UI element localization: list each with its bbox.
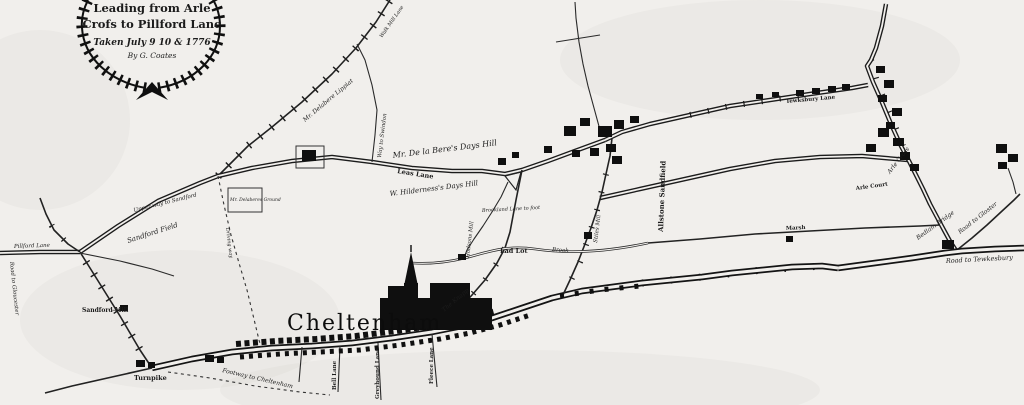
river-chelt — [412, 243, 648, 263]
label-brook: Brook — [551, 247, 570, 254]
label-hilderness-days-hill: W. Hilderness's Days Hill — [389, 179, 478, 198]
label-brookland-lane: Brookland Lane to foot — [481, 205, 541, 214]
building — [302, 150, 316, 161]
label-allstone-sandfield: Allstone Sandfield — [656, 160, 668, 233]
building — [630, 116, 639, 123]
paper-texture — [0, 0, 960, 405]
cartouche-line1: Leading from Arle — [93, 1, 210, 15]
label-greyhound-lane: Greyhound Lane — [375, 348, 381, 399]
building — [942, 240, 954, 249]
building — [796, 90, 804, 96]
label-road-to-gloster: Road to Gloster — [956, 200, 1000, 236]
building — [1008, 154, 1018, 162]
label-turnpike: Turnpike — [134, 374, 167, 382]
road-west-edge — [0, 252, 80, 253]
building — [606, 144, 616, 152]
road-sandfield-casing — [600, 156, 908, 198]
label-delabere-lippiat: Mr. Delabere Lippiat — [301, 77, 355, 124]
building — [892, 108, 902, 116]
lane-alstone-south — [562, 138, 612, 297]
road-days-hill-casing — [80, 140, 605, 252]
building — [544, 146, 552, 153]
building — [878, 128, 889, 137]
label-marsh: Marsh — [786, 225, 806, 232]
building — [786, 236, 793, 242]
label-lad-lot: Lad Lot — [500, 247, 528, 255]
label-delaberes-ground: Mr. Delaberes Ground — [229, 197, 281, 203]
cartouche-line4: By G. Coates — [127, 51, 177, 60]
label-pillford-lane: Pillford Lane — [13, 243, 51, 250]
label-road-to-gloucester: Road to Gloucester — [8, 261, 20, 316]
building — [148, 362, 155, 368]
building — [217, 357, 224, 363]
building — [512, 152, 519, 158]
cartouche-line2: Crofs to Pillford Lane — [83, 17, 222, 31]
building — [812, 88, 820, 94]
label-sandford-field: Sandford Field — [126, 221, 179, 245]
stream-outline — [412, 243, 648, 263]
building — [580, 118, 590, 126]
road-topleft-hatched — [218, 0, 390, 176]
building — [598, 126, 612, 137]
building — [998, 162, 1007, 169]
label-way-to-swindon: Way to Swindon — [377, 113, 388, 159]
church-spire — [404, 252, 418, 286]
building — [772, 92, 779, 97]
building — [590, 148, 599, 156]
building — [498, 158, 506, 165]
label-sandford-mill: Sandford Mill — [82, 307, 129, 314]
road-sandfield — [600, 156, 908, 198]
building — [584, 232, 592, 239]
wreath-knot — [136, 82, 168, 100]
building — [612, 156, 622, 164]
building — [876, 66, 885, 73]
label-delabere-days-hill: Mr. De la Bere's Days Hill — [391, 138, 498, 160]
label-fleece-lane: Fleece Lane — [429, 347, 435, 384]
antique-map-scan: Leading from Arle Crofs to Pillford Lane… — [0, 0, 1024, 405]
cartouche-line3: Taken July 9 10 & 1776 — [93, 38, 211, 48]
building — [842, 84, 850, 90]
building — [205, 355, 214, 362]
building — [893, 138, 904, 146]
building — [884, 80, 894, 88]
road-right-edge-stub — [1008, 168, 1016, 194]
building — [572, 150, 580, 157]
label-sandford-mill-arrow: → — [112, 307, 117, 314]
building — [866, 144, 876, 152]
map-canvas: Leading from Arle Crofs to Pillford Lane… — [0, 0, 1024, 405]
town-name-label: Cheltenham — [287, 311, 442, 336]
building — [996, 144, 1007, 153]
building — [886, 122, 895, 129]
label-road-to-tewkesbury: Road to Tewkesbury — [945, 253, 1014, 265]
building — [828, 86, 836, 92]
building — [878, 95, 887, 102]
label-arle-court: Arle Court — [854, 182, 888, 193]
building — [136, 360, 145, 367]
lane-way-to-swindon — [357, 44, 377, 162]
building — [614, 120, 624, 129]
building — [564, 126, 576, 136]
label-bell-lane: Bell Lane — [332, 360, 338, 390]
building — [756, 94, 763, 99]
label-walk-mill-lane: Walk Mill Lane — [379, 5, 406, 40]
building — [910, 164, 919, 171]
